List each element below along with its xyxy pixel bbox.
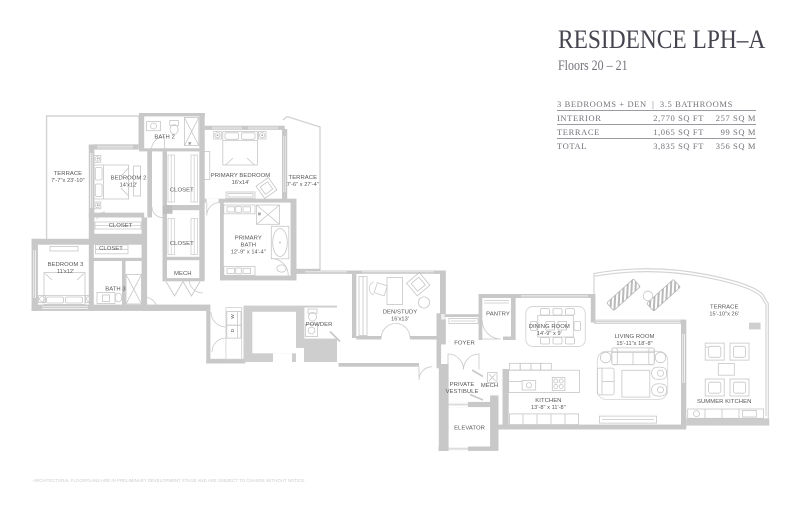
svg-text:14'x12': 14'x12'	[120, 183, 138, 189]
svg-text:11'x12': 11'x12'	[57, 269, 74, 275]
svg-text:BEDROOM 2: BEDROOM 2	[111, 176, 147, 182]
svg-text:BATH 2: BATH 2	[154, 135, 175, 141]
svg-text:TERRACE: TERRACE	[710, 305, 739, 311]
svg-text:D: D	[230, 328, 236, 332]
svg-text:ELEVATOR: ELEVATOR	[454, 426, 485, 432]
svg-text:BATH: BATH	[241, 243, 256, 249]
svg-text:LIVING ROOM: LIVING ROOM	[615, 334, 655, 340]
svg-text:16'x14': 16'x14'	[232, 180, 250, 186]
svg-text:MECH: MECH	[174, 271, 192, 277]
svg-text:15'-10"x 26': 15'-10"x 26'	[709, 312, 739, 318]
svg-text:DINING ROOM: DINING ROOM	[529, 324, 570, 330]
svg-text:CLOSET: CLOSET	[170, 241, 194, 247]
svg-text:CLOSET: CLOSET	[109, 223, 133, 229]
svg-text:MECH: MECH	[481, 383, 498, 389]
svg-text:7'-6" x 27'-4": 7'-6" x 27'-4"	[287, 182, 319, 188]
svg-text:15'-11"x 18'-8": 15'-11"x 18'-8"	[616, 341, 652, 347]
svg-text:12'-9" x 14'-4": 12'-9" x 14'-4"	[231, 250, 266, 256]
svg-text:DEN/STUDY: DEN/STUDY	[383, 309, 418, 315]
svg-text:BATH 3: BATH 3	[105, 287, 126, 293]
svg-text:POWDER: POWDER	[306, 322, 333, 328]
svg-text:7'-7"x 23'-10": 7'-7"x 23'-10"	[51, 178, 85, 184]
svg-text:13'-8" x 11'-8": 13'-8" x 11'-8"	[531, 405, 566, 411]
svg-text:PRIMARY: PRIMARY	[235, 236, 262, 242]
svg-text:FOYER: FOYER	[454, 340, 475, 346]
svg-text:VESTIBULE: VESTIBULE	[446, 389, 479, 395]
svg-text:16'x13': 16'x13'	[391, 316, 409, 322]
svg-text:SUMMER KITCHEN: SUMMER KITCHEN	[697, 399, 751, 405]
svg-text:CLOSET: CLOSET	[99, 246, 123, 252]
svg-text:CLOSET: CLOSET	[170, 188, 194, 194]
svg-text:TERRACE: TERRACE	[289, 175, 318, 181]
svg-text:BEDROOM 3: BEDROOM 3	[48, 262, 84, 268]
svg-text:PRIVATE: PRIVATE	[450, 382, 475, 388]
svg-text:TERRACE: TERRACE	[54, 171, 83, 177]
svg-text:KITCHEN: KITCHEN	[535, 398, 561, 404]
svg-text:PRIMARY BEDROOM: PRIMARY BEDROOM	[211, 173, 270, 179]
svg-text:14'-9" x 9': 14'-9" x 9'	[537, 331, 562, 337]
svg-text:W: W	[230, 314, 236, 319]
svg-text:PANTRY: PANTRY	[486, 312, 510, 318]
